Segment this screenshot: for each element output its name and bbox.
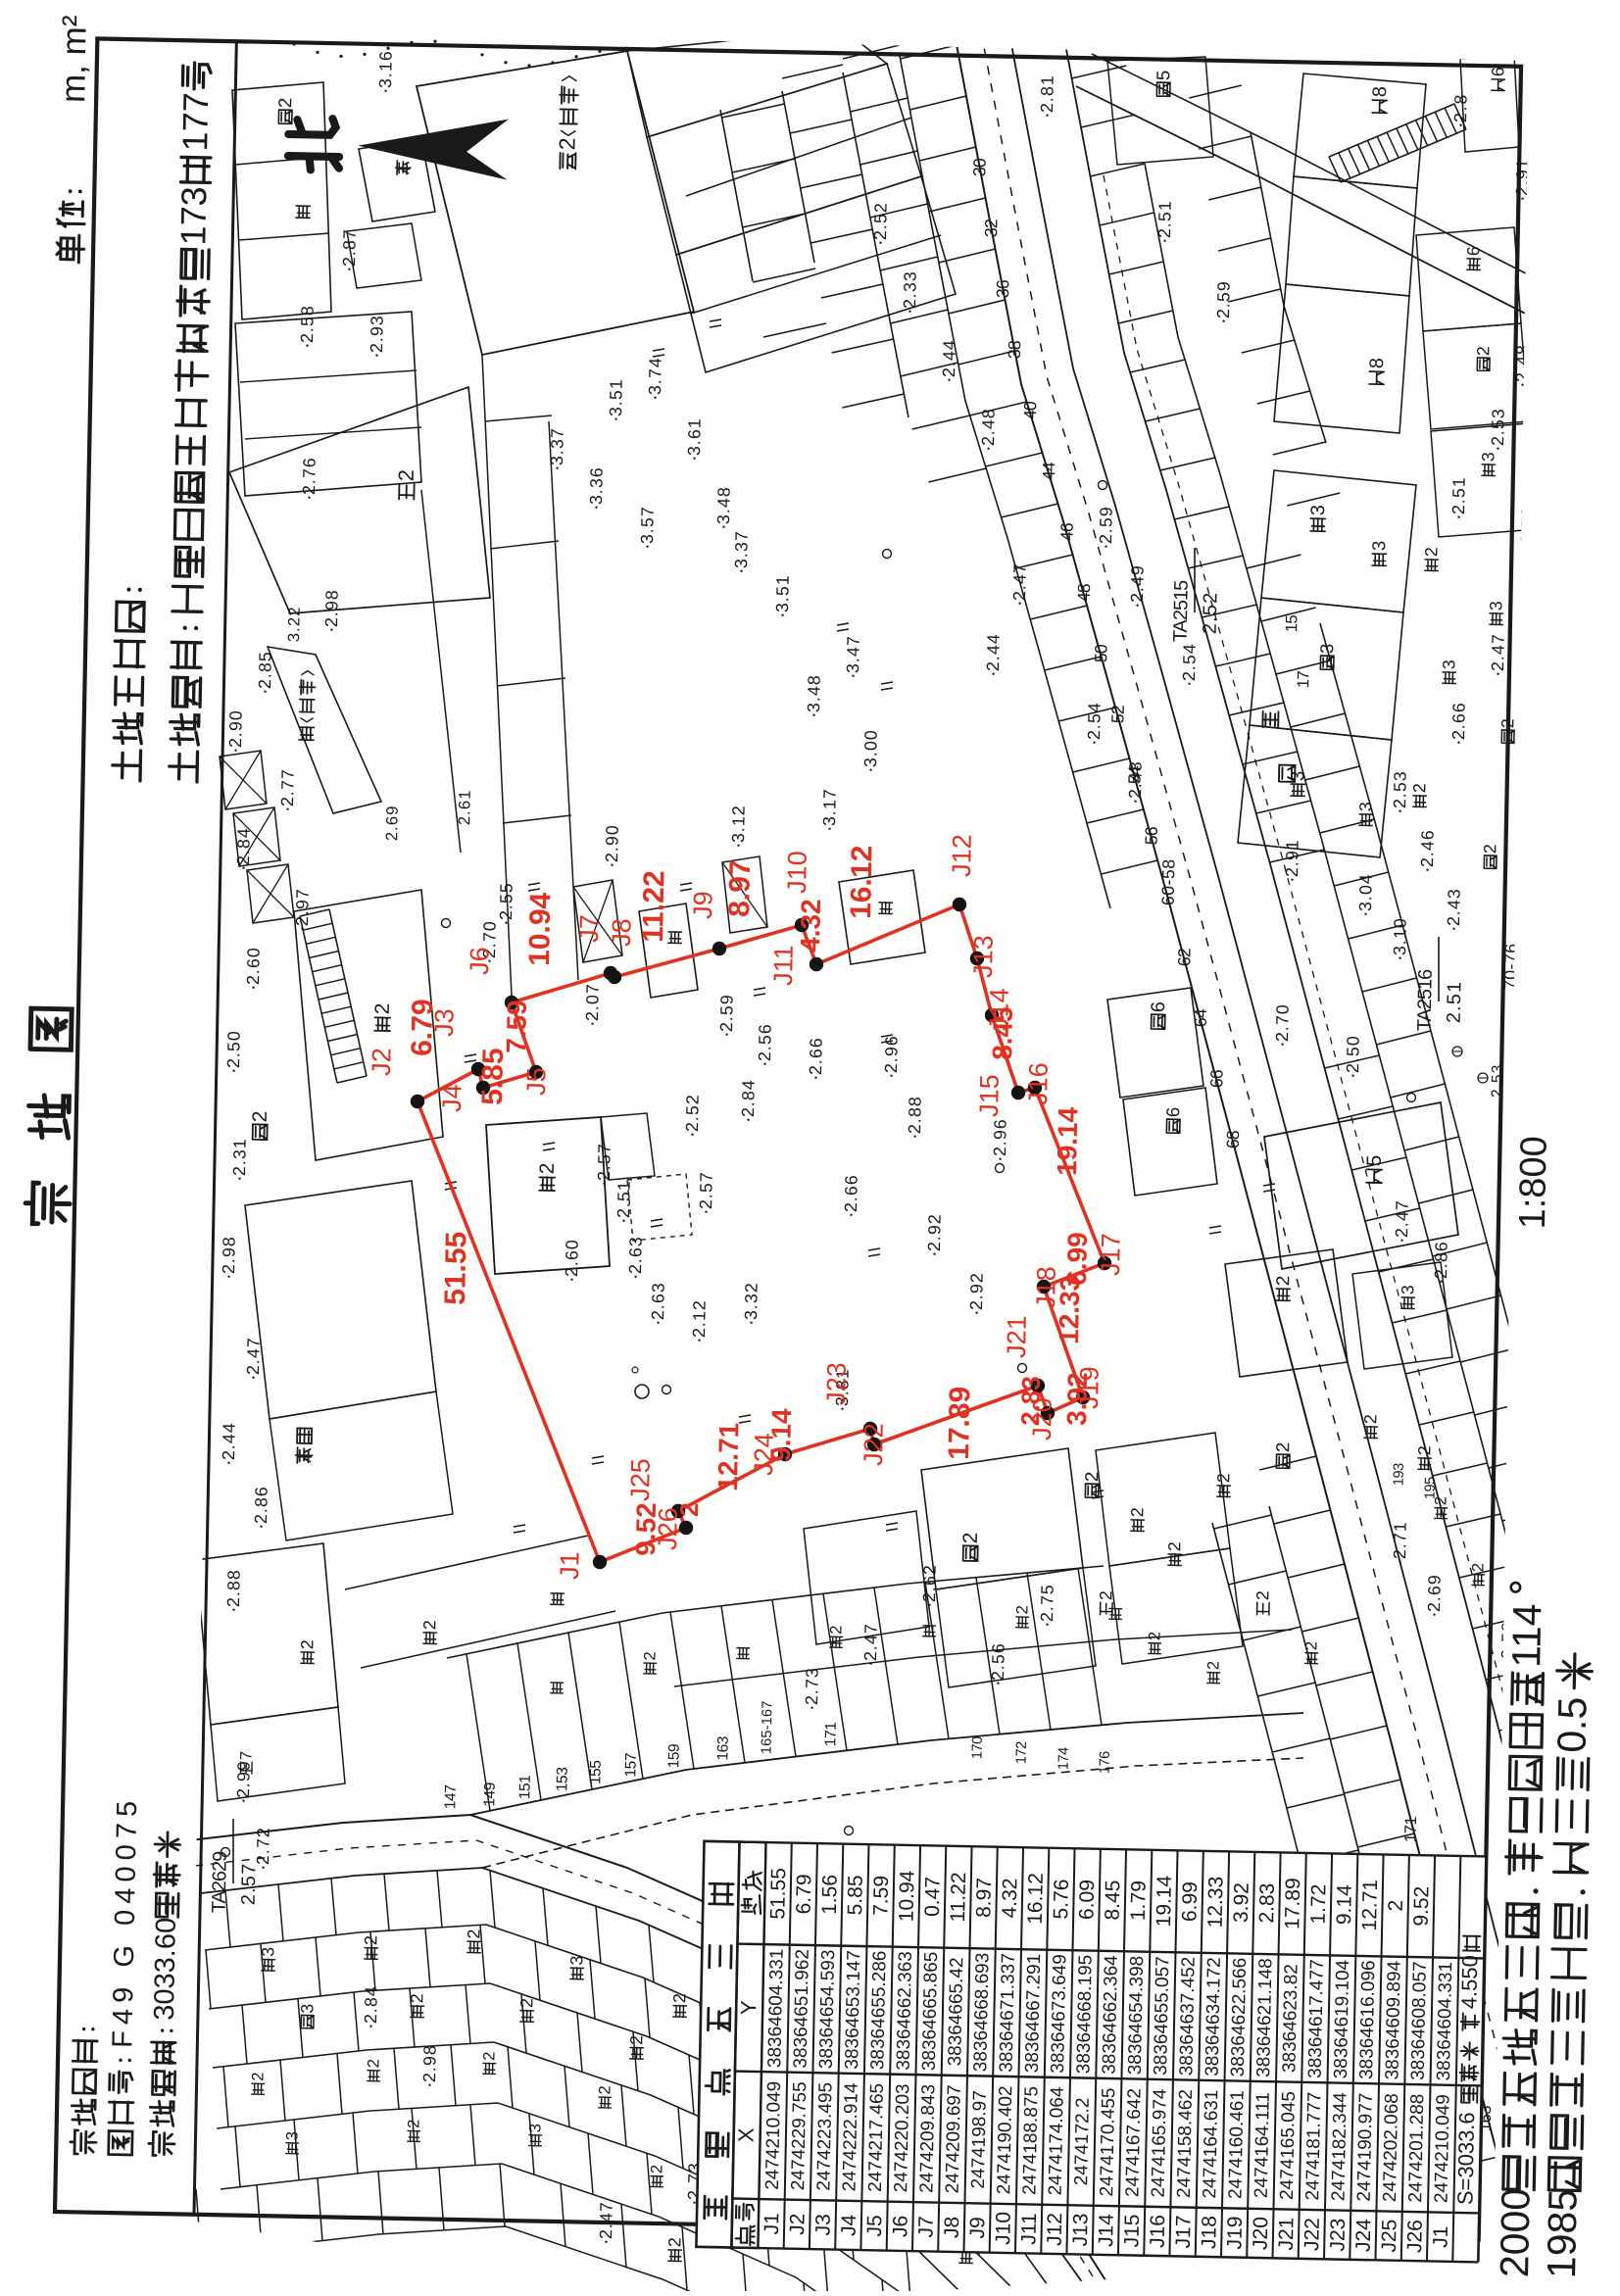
svg-text:2.63: 2.63 — [625, 1237, 646, 1274]
svg-text:2: 2 — [669, 1993, 689, 2003]
svg-text:5.85: 5.85 — [844, 1875, 867, 1915]
svg-text:J10: J10 — [992, 2212, 1015, 2245]
svg-text:2.51: 2.51 — [614, 1181, 634, 1218]
svg-text:2.86: 2.86 — [1431, 1242, 1451, 1279]
svg-text:2.57: 2.57 — [594, 1144, 614, 1181]
svg-text:171: 171 — [822, 1722, 839, 1746]
svg-text:9.52: 9.52 — [1410, 1886, 1434, 1927]
svg-text:10.94: 10.94 — [523, 892, 557, 966]
svg-text:38364623.82: 38364623.82 — [1279, 1964, 1301, 2073]
svg-text:3: 3 — [1355, 802, 1375, 811]
svg-text:38: 38 — [1005, 340, 1024, 359]
svg-text:2.50: 2.50 — [1343, 1036, 1363, 1073]
svg-text:2: 2 — [1468, 1563, 1487, 1573]
svg-text:3.48: 3.48 — [713, 487, 734, 524]
svg-text:2.47: 2.47 — [1009, 563, 1030, 601]
svg-text:J16: J16 — [1147, 2215, 1170, 2248]
svg-text:2.66: 2.66 — [806, 1038, 826, 1075]
svg-text:2474181.777: 2474181.777 — [1302, 2091, 1325, 2200]
svg-text:3.51: 3.51 — [606, 379, 626, 416]
svg-text:2.83: 2.83 — [1255, 1882, 1279, 1923]
svg-text:2474165.974: 2474165.974 — [1149, 2088, 1171, 2198]
svg-text:3: 3 — [1478, 452, 1497, 462]
svg-text:50: 50 — [1091, 644, 1110, 662]
svg-text:2: 2 — [1272, 1276, 1293, 1287]
svg-text:52: 52 — [1107, 705, 1127, 723]
svg-text:2.51: 2.51 — [1444, 982, 1466, 1024]
svg-text:5.85: 5.85 — [476, 1048, 510, 1105]
svg-text:19.14: 19.14 — [1052, 1106, 1083, 1176]
svg-text:2474209.843: 2474209.843 — [916, 2084, 939, 2193]
svg-text:3.61: 3.61 — [684, 418, 705, 456]
svg-text:J21: J21 — [1275, 2217, 1299, 2250]
svg-text:J15: J15 — [974, 1074, 1005, 1117]
svg-text:2: 2 — [394, 469, 418, 482]
svg-text:163: 163 — [714, 1735, 731, 1760]
svg-text:8: 8 — [1369, 86, 1391, 97]
svg-text:2.48: 2.48 — [978, 409, 999, 446]
svg-text:56: 56 — [1142, 826, 1161, 845]
svg-text:3.57: 3.57 — [637, 507, 658, 544]
svg-text:2000: 2000 — [1492, 2187, 1539, 2277]
svg-text:2.99: 2.99 — [233, 1761, 254, 1798]
svg-text:J2: J2 — [786, 2214, 809, 2236]
svg-text:2.57: 2.57 — [696, 1172, 716, 1209]
svg-text:2: 2 — [407, 1993, 426, 2003]
svg-text:2: 2 — [1360, 1414, 1380, 1424]
svg-text:2.52: 2.52 — [870, 203, 891, 240]
svg-text:38364622.566: 38364622.566 — [1228, 1958, 1251, 2077]
svg-text:2.87: 2.87 — [339, 229, 360, 267]
svg-text:2: 2 — [647, 2165, 665, 2174]
svg-text:J8: J8 — [941, 2217, 963, 2239]
svg-text:2474190.402: 2474190.402 — [994, 2085, 1016, 2194]
svg-text:2.59: 2.59 — [1213, 281, 1234, 318]
svg-text:38364665.865: 38364665.865 — [919, 1951, 942, 2071]
svg-text:17.89: 17.89 — [943, 1386, 976, 1460]
svg-text:2.83: 2.83 — [1015, 1376, 1046, 1426]
svg-text:12.71: 12.71 — [1358, 1880, 1382, 1931]
svg-text:3: 3 — [1316, 644, 1337, 655]
svg-text:2.56: 2.56 — [755, 1024, 775, 1061]
svg-text:2: 2 — [1272, 1442, 1293, 1453]
svg-text:J20: J20 — [1250, 2217, 1273, 2250]
svg-text:2.84: 2.84 — [738, 1080, 759, 1117]
svg-text:2.71: 2.71 — [1390, 1522, 1410, 1559]
svg-text:J16: J16 — [1023, 1062, 1054, 1105]
svg-text:2.66: 2.66 — [1448, 703, 1469, 740]
svg-text:J6: J6 — [889, 2216, 911, 2238]
svg-text:38364668.693: 38364668.693 — [970, 1952, 993, 2072]
svg-text:2.77: 2.77 — [277, 769, 298, 806]
svg-text:9.52: 9.52 — [630, 1502, 662, 1556]
svg-text:2.57: 2.57 — [238, 1864, 261, 1906]
svg-text:2.90: 2.90 — [225, 710, 246, 748]
svg-text:Y: Y — [736, 2000, 761, 2015]
svg-text:2.90: 2.90 — [602, 825, 622, 862]
svg-text:2.93: 2.93 — [367, 316, 387, 353]
svg-text:3.36: 3.36 — [586, 467, 607, 505]
svg-text:4.32: 4.32 — [795, 899, 826, 953]
svg-text:2474210.049: 2474210.049 — [762, 2081, 785, 2190]
svg-text:11.22: 11.22 — [947, 1872, 970, 1922]
svg-text:2: 2 — [361, 1935, 380, 1945]
svg-text:5.76: 5.76 — [1050, 1879, 1073, 1919]
svg-text:157: 157 — [622, 1752, 639, 1777]
svg-text:J11: J11 — [1017, 2213, 1041, 2245]
svg-text:3.92: 3.92 — [1061, 1372, 1093, 1426]
svg-text:1.72: 1.72 — [1307, 1883, 1331, 1924]
svg-text:38364651.962: 38364651.962 — [791, 1949, 813, 2069]
svg-text:46: 46 — [1057, 522, 1077, 541]
svg-text:3: 3 — [258, 1947, 277, 1957]
svg-text:2474182.344: 2474182.344 — [1328, 2092, 1350, 2202]
svg-text:170: 170 — [970, 1736, 986, 1760]
svg-text:2.92: 2.92 — [924, 1214, 945, 1251]
svg-text:2: 2 — [516, 1998, 536, 2008]
svg-text:J19: J19 — [1223, 2216, 1247, 2249]
svg-text:40: 40 — [1020, 401, 1040, 419]
svg-text:J3: J3 — [811, 2214, 834, 2236]
svg-text:2.47: 2.47 — [860, 1624, 881, 1661]
svg-text:3: 3 — [1287, 771, 1307, 782]
svg-text:J10: J10 — [782, 851, 812, 894]
svg-text:165-167: 165-167 — [760, 1701, 776, 1755]
svg-text:J2: J2 — [367, 1048, 397, 1076]
svg-text:J13: J13 — [1069, 2213, 1093, 2246]
svg-text:J22: J22 — [1301, 2218, 1324, 2251]
svg-text:2.58: 2.58 — [297, 306, 318, 343]
svg-text:J12: J12 — [947, 834, 977, 877]
svg-text:153: 153 — [554, 1767, 570, 1791]
svg-text:J17: J17 — [1172, 2215, 1196, 2248]
svg-text:17: 17 — [1294, 670, 1312, 688]
svg-text:2.33: 2.33 — [900, 271, 920, 309]
svg-text:2: 2 — [479, 2052, 498, 2062]
svg-text:8.45: 8.45 — [987, 1006, 1018, 1060]
svg-text:68: 68 — [1223, 1130, 1243, 1148]
svg-text:114: 114 — [1503, 1603, 1549, 1668]
svg-text:7.59: 7.59 — [501, 1000, 532, 1053]
svg-text:38364634.172: 38364634.172 — [1203, 1957, 1225, 2076]
svg-text:38364654.593: 38364654.593 — [816, 1949, 839, 2069]
svg-text:3.10: 3.10 — [1390, 918, 1410, 955]
svg-text:J9: J9 — [966, 2217, 989, 2239]
svg-text:J5: J5 — [521, 1067, 552, 1096]
svg-text:2.73: 2.73 — [802, 1668, 822, 1705]
svg-text:38364653.147: 38364653.147 — [842, 1950, 864, 2070]
svg-text:66: 66 — [1206, 1069, 1226, 1088]
svg-text:2.85: 2.85 — [255, 652, 275, 689]
svg-text:2.53: 2.53 — [1489, 1065, 1506, 1099]
svg-text:2: 2 — [959, 1532, 982, 1543]
svg-text:2.60: 2.60 — [243, 948, 264, 985]
svg-text:9.14: 9.14 — [765, 1408, 797, 1463]
svg-text:X: X — [734, 2127, 759, 2142]
svg-text:2.69: 2.69 — [382, 806, 402, 841]
svg-text:2: 2 — [1213, 1473, 1233, 1483]
svg-text:2.52: 2.52 — [682, 1095, 703, 1132]
svg-text:2.56: 2.56 — [988, 1643, 1008, 1681]
svg-text:2: 2 — [554, 137, 579, 150]
svg-text:0.5: 0.5 — [1548, 1696, 1595, 1753]
svg-text:J15: J15 — [1120, 2214, 1144, 2247]
svg-text:J5: J5 — [863, 2215, 886, 2237]
svg-text:3.12: 3.12 — [728, 806, 749, 843]
svg-text:2: 2 — [419, 1620, 439, 1630]
svg-text:171: 171 — [1401, 1816, 1421, 1842]
svg-text:3: 3 — [282, 2131, 301, 2141]
svg-text:2474201.288: 2474201.288 — [1405, 2093, 1428, 2202]
svg-text:12.71: 12.71 — [712, 1422, 744, 1491]
svg-text:J1: J1 — [761, 2213, 783, 2235]
svg-text:8.97: 8.97 — [723, 859, 757, 917]
svg-text:3.47: 3.47 — [843, 636, 863, 673]
svg-text:TA2516: TA2516 — [1414, 969, 1437, 1032]
svg-text:2: 2 — [1480, 844, 1499, 854]
svg-text:J23: J23 — [821, 1362, 852, 1405]
svg-text:62: 62 — [1174, 948, 1194, 966]
svg-text:2.88: 2.88 — [223, 1570, 244, 1607]
svg-text:2.47: 2.47 — [243, 1338, 264, 1375]
svg-text:2: 2 — [1473, 346, 1493, 356]
svg-text:51.55: 51.55 — [439, 1231, 472, 1305]
svg-text:2.8: 2.8 — [1450, 94, 1471, 122]
svg-text:38364655.057: 38364655.057 — [1151, 1956, 1173, 2076]
svg-text:J7: J7 — [574, 914, 605, 943]
svg-text:38364608.057: 38364608.057 — [1408, 1961, 1431, 2080]
svg-text:2.46: 2.46 — [1417, 830, 1438, 867]
svg-text:2474164.631: 2474164.631 — [1200, 2089, 1222, 2198]
svg-text:3: 3 — [1439, 659, 1458, 669]
svg-text:J18: J18 — [1198, 2216, 1221, 2249]
svg-text:2.54: 2.54 — [1084, 703, 1105, 740]
svg-text:J26: J26 — [1403, 2220, 1427, 2253]
svg-text:J24: J24 — [1352, 2219, 1376, 2253]
svg-text:2: 2 — [1409, 783, 1429, 793]
svg-text:6.79: 6.79 — [793, 1874, 816, 1914]
svg-text:F49 G 040075: F49 G 040075 — [107, 1801, 143, 2049]
svg-text:17.89: 17.89 — [1281, 1878, 1304, 1930]
svg-text:J14: J14 — [1095, 2214, 1118, 2248]
svg-text:2.76: 2.76 — [299, 458, 319, 495]
svg-text:176: 176 — [1098, 1751, 1113, 1775]
svg-text:2474167.642: 2474167.642 — [1122, 2088, 1145, 2197]
svg-text:38364654.398: 38364654.398 — [1125, 1956, 1148, 2076]
svg-text:2: 2 — [1164, 1541, 1184, 1551]
svg-text:2.51: 2.51 — [1154, 201, 1175, 238]
svg-text:3.37: 3.37 — [731, 531, 752, 568]
svg-text:147: 147 — [442, 1784, 459, 1809]
svg-text:2: 2 — [536, 1162, 559, 1174]
svg-text:19.14: 19.14 — [1153, 1875, 1176, 1927]
svg-text:4.550: 4.550 — [1456, 1955, 1482, 2010]
svg-text:J4: J4 — [437, 1084, 467, 1112]
svg-text:2: 2 — [248, 2072, 267, 2081]
svg-text:3.92: 3.92 — [1230, 1882, 1253, 1923]
svg-text:2.72: 2.72 — [253, 1828, 273, 1865]
svg-text:2: 2 — [595, 2085, 614, 2095]
svg-text:2.55: 2.55 — [496, 883, 516, 920]
svg-text:38364604.331: 38364604.331 — [764, 1948, 787, 2068]
svg-text:J9: J9 — [688, 891, 718, 919]
svg-text:2.49: 2.49 — [1127, 565, 1148, 603]
svg-text:TA2629: TA2629 — [209, 1851, 231, 1914]
svg-text:m, m²: m, m² — [54, 15, 94, 103]
svg-text:51.55: 51.55 — [766, 1868, 790, 1920]
svg-text:3.74: 3.74 — [645, 358, 665, 395]
svg-text:193: 193 — [1392, 1463, 1407, 1487]
svg-text:2: 2 — [1421, 547, 1441, 557]
svg-text:3.16: 3.16 — [375, 51, 396, 88]
svg-text:2.31: 2.31 — [229, 1139, 250, 1176]
svg-text:2: 2 — [674, 1502, 704, 1517]
svg-text:48: 48 — [1074, 583, 1094, 602]
svg-text:2.43: 2.43 — [1444, 889, 1464, 926]
svg-text:3.22: 3.22 — [284, 607, 304, 642]
svg-text:6: 6 — [1463, 246, 1483, 256]
svg-text:38364604.331: 38364604.331 — [1434, 1962, 1456, 2081]
svg-text:38364662.364: 38364662.364 — [1100, 1955, 1122, 2075]
svg-text:2.44: 2.44 — [219, 1423, 239, 1460]
svg-text:2474222.914: 2474222.914 — [840, 2082, 862, 2192]
svg-text:2.84: 2.84 — [361, 1986, 381, 2024]
svg-text:6.79: 6.79 — [406, 999, 439, 1056]
svg-text:2.60: 2.60 — [562, 1240, 582, 1277]
svg-text:177: 177 — [174, 92, 216, 152]
svg-text:J1: J1 — [1430, 2225, 1452, 2248]
svg-text:8.97: 8.97 — [972, 1878, 996, 1918]
svg-text:4.32: 4.32 — [999, 1878, 1022, 1918]
svg-text:2474164.111: 2474164.111 — [1252, 2092, 1274, 2199]
svg-text:3: 3 — [525, 2124, 544, 2133]
svg-text:J7: J7 — [914, 2216, 937, 2238]
svg-text:149: 149 — [481, 1782, 498, 1806]
svg-text:S=3033.6: S=3033.6 — [1452, 2112, 1479, 2205]
svg-text:2: 2 — [1145, 1632, 1163, 1641]
svg-text:2.12: 2.12 — [689, 1300, 710, 1338]
svg-text:2.53: 2.53 — [1390, 771, 1410, 808]
svg-text:J1: J1 — [555, 1551, 585, 1580]
svg-text:2.98: 2.98 — [419, 2045, 440, 2082]
svg-text:3.17: 3.17 — [819, 789, 840, 826]
svg-text:38364667.291: 38364667.291 — [1022, 1954, 1045, 2074]
svg-text:2: 2 — [1012, 1605, 1031, 1615]
svg-text:2.52: 2.52 — [1200, 593, 1222, 635]
svg-text:1.56: 1.56 — [818, 1875, 842, 1915]
svg-text:195: 195 — [1423, 1477, 1439, 1500]
svg-text:2: 2 — [664, 2237, 684, 2247]
svg-text:38364619.104: 38364619.104 — [1331, 1959, 1353, 2078]
svg-text:30: 30 — [969, 158, 989, 176]
svg-text:151: 151 — [516, 1775, 533, 1799]
svg-text:2.84: 2.84 — [233, 828, 254, 865]
svg-text:2.69: 2.69 — [1424, 1575, 1445, 1612]
svg-text:2474209.697: 2474209.697 — [943, 2084, 965, 2193]
svg-text:2.70: 2.70 — [1272, 1004, 1293, 1042]
svg-text:174: 174 — [1056, 1747, 1072, 1771]
svg-text:2: 2 — [249, 1110, 271, 1122]
svg-text:10.94: 10.94 — [896, 1870, 919, 1922]
svg-text:2: 2 — [464, 1929, 483, 1938]
svg-text:38364637.452: 38364637.452 — [1176, 1957, 1199, 2076]
svg-text:2.50: 2.50 — [223, 1031, 244, 1068]
svg-text:38364621.148: 38364621.148 — [1253, 1958, 1276, 2077]
svg-text:3.32: 3.32 — [741, 1283, 761, 1320]
svg-text:6.99: 6.99 — [1178, 1881, 1202, 1922]
svg-text:38364655.286: 38364655.286 — [867, 1950, 890, 2070]
svg-text:J25: J25 — [1378, 2219, 1401, 2252]
svg-text:1:800: 1:800 — [1512, 1136, 1555, 1230]
svg-text:3: 3 — [1307, 505, 1329, 515]
svg-text:2474190.977: 2474190.977 — [1354, 2092, 1377, 2201]
svg-text:3: 3 — [1398, 1285, 1417, 1295]
svg-text:2: 2 — [1203, 1661, 1222, 1671]
svg-text:2.91: 2.91 — [1282, 840, 1302, 877]
svg-text:J8: J8 — [607, 918, 637, 947]
svg-text:8.45: 8.45 — [1102, 1880, 1125, 1920]
svg-text:2.07: 2.07 — [582, 984, 603, 1021]
svg-text:15: 15 — [1282, 614, 1301, 632]
svg-text:3.37: 3.37 — [547, 428, 567, 465]
svg-text:2474160.461: 2474160.461 — [1225, 2090, 1248, 2199]
svg-text:2.66: 2.66 — [841, 1175, 861, 1212]
svg-text:2.88: 2.88 — [905, 1097, 925, 1134]
svg-text:2.97: 2.97 — [292, 889, 313, 926]
svg-text:2474220.203: 2474220.203 — [891, 2083, 913, 2192]
svg-text:2474158.462: 2474158.462 — [1174, 2089, 1197, 2198]
svg-text:2474202.068: 2474202.068 — [1380, 2093, 1402, 2202]
svg-text:12.33: 12.33 — [1054, 1275, 1085, 1344]
svg-text:J6: J6 — [465, 947, 495, 975]
svg-text:2474229.755: 2474229.755 — [788, 2081, 810, 2190]
svg-text:2.92: 2.92 — [966, 1273, 987, 1310]
svg-text:2474210.049: 2474210.049 — [1431, 2094, 1453, 2203]
svg-text:3: 3 — [1368, 541, 1389, 552]
svg-text:2.59: 2.59 — [716, 995, 737, 1032]
svg-text:J12: J12 — [1044, 2213, 1067, 2246]
svg-text:2.59: 2.59 — [1096, 507, 1116, 544]
svg-text:2.54: 2.54 — [1179, 644, 1200, 681]
svg-text:12.33: 12.33 — [1204, 1877, 1228, 1929]
svg-text:2474172.2: 2474172.2 — [1071, 2097, 1094, 2185]
svg-text:2: 2 — [1385, 1900, 1407, 1912]
svg-text:2: 2 — [1127, 1507, 1147, 1517]
svg-text:44: 44 — [1039, 462, 1058, 480]
svg-text:3.51: 3.51 — [772, 575, 793, 612]
svg-text:16.12: 16.12 — [1024, 1873, 1048, 1925]
svg-text:TA2515: TA2515 — [1170, 580, 1193, 643]
svg-text:3: 3 — [566, 1955, 586, 1965]
svg-text:2: 2 — [364, 2059, 382, 2069]
svg-text:2474188.875: 2474188.875 — [1019, 2086, 1042, 2195]
svg-text:38364616.096: 38364616.096 — [1356, 1960, 1379, 2079]
svg-text:2474223.495: 2474223.495 — [813, 2082, 836, 2191]
svg-text:2.44: 2.44 — [939, 340, 959, 377]
svg-text:2.47: 2.47 — [1488, 634, 1508, 671]
svg-text:J21: J21 — [1002, 1315, 1032, 1358]
svg-text:2.48: 2.48 — [1125, 761, 1146, 799]
svg-text:7: 7 — [236, 1751, 255, 1761]
svg-text:J13: J13 — [968, 935, 999, 978]
svg-text:173: 173 — [172, 186, 214, 246]
svg-text:2474165.045: 2474165.045 — [1277, 2091, 1300, 2200]
svg-text:2: 2 — [371, 1002, 394, 1014]
svg-text:2474217.465: 2474217.465 — [865, 2083, 888, 2192]
svg-text:2: 2 — [404, 2120, 422, 2129]
svg-text:2.47: 2.47 — [1392, 1200, 1412, 1238]
svg-text:1985: 1985 — [1539, 2188, 1586, 2278]
